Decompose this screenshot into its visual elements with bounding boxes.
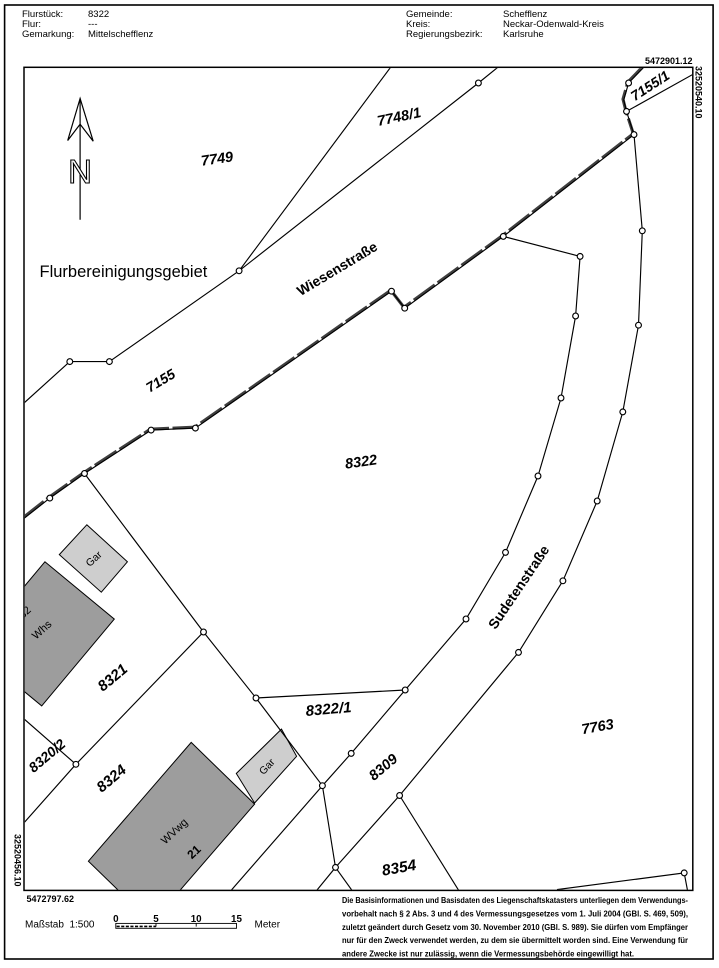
svg-text:8354: 8354 [381, 857, 418, 880]
svg-text:7763: 7763 [580, 717, 615, 738]
svg-text:nur für den Zweck verwendet we: nur für den Zweck verwendet werden, zu d… [342, 936, 688, 945]
svg-text:Wiesenstraße: Wiesenstraße [294, 238, 380, 299]
svg-text:10: 10 [191, 914, 202, 925]
svg-text:5: 5 [153, 914, 159, 925]
svg-text:32520540.10: 32520540.10 [694, 66, 704, 119]
svg-text:5472901.12: 5472901.12 [645, 56, 693, 66]
svg-text:8321: 8321 [95, 661, 131, 695]
svg-text:8322/1: 8322/1 [305, 699, 352, 720]
svg-text:7748/1: 7748/1 [376, 105, 423, 130]
svg-text:8322: 8322 [344, 452, 378, 472]
svg-text:Flurbereinigungsgebiet: Flurbereinigungsgebiet [40, 263, 208, 281]
svg-text:Maßstab 1:500: Maßstab 1:500 [25, 919, 95, 930]
svg-text:7749: 7749 [200, 149, 234, 169]
svg-text:andere Zwecke ist nur zulässig: andere Zwecke ist nur zulässig, wenn die… [342, 950, 634, 959]
svg-text:zuletzt geändert durch Gesetz: zuletzt geändert durch Gesetz vom 30. No… [342, 923, 688, 932]
svg-text:7155: 7155 [143, 366, 178, 396]
svg-text:Die Basisinformationen und Bas: Die Basisinformationen und Basisdaten de… [342, 896, 688, 905]
svg-text:15: 15 [231, 914, 242, 925]
svg-text:5472797.62: 5472797.62 [27, 894, 75, 904]
svg-text:Meter: Meter [255, 919, 281, 930]
svg-text:8324: 8324 [93, 761, 130, 796]
svg-text:32520456.10: 32520456.10 [13, 834, 23, 887]
svg-text:Sudetenstraße: Sudetenstraße [485, 542, 553, 632]
svg-text:8309: 8309 [366, 751, 401, 784]
svg-text:N: N [68, 153, 92, 190]
svg-text:vorbehalt nach § 2 Abs. 3 und: vorbehalt nach § 2 Abs. 3 und 4 des Verm… [342, 909, 688, 918]
svg-text:0: 0 [113, 914, 119, 925]
svg-text:8320/2: 8320/2 [25, 736, 68, 776]
